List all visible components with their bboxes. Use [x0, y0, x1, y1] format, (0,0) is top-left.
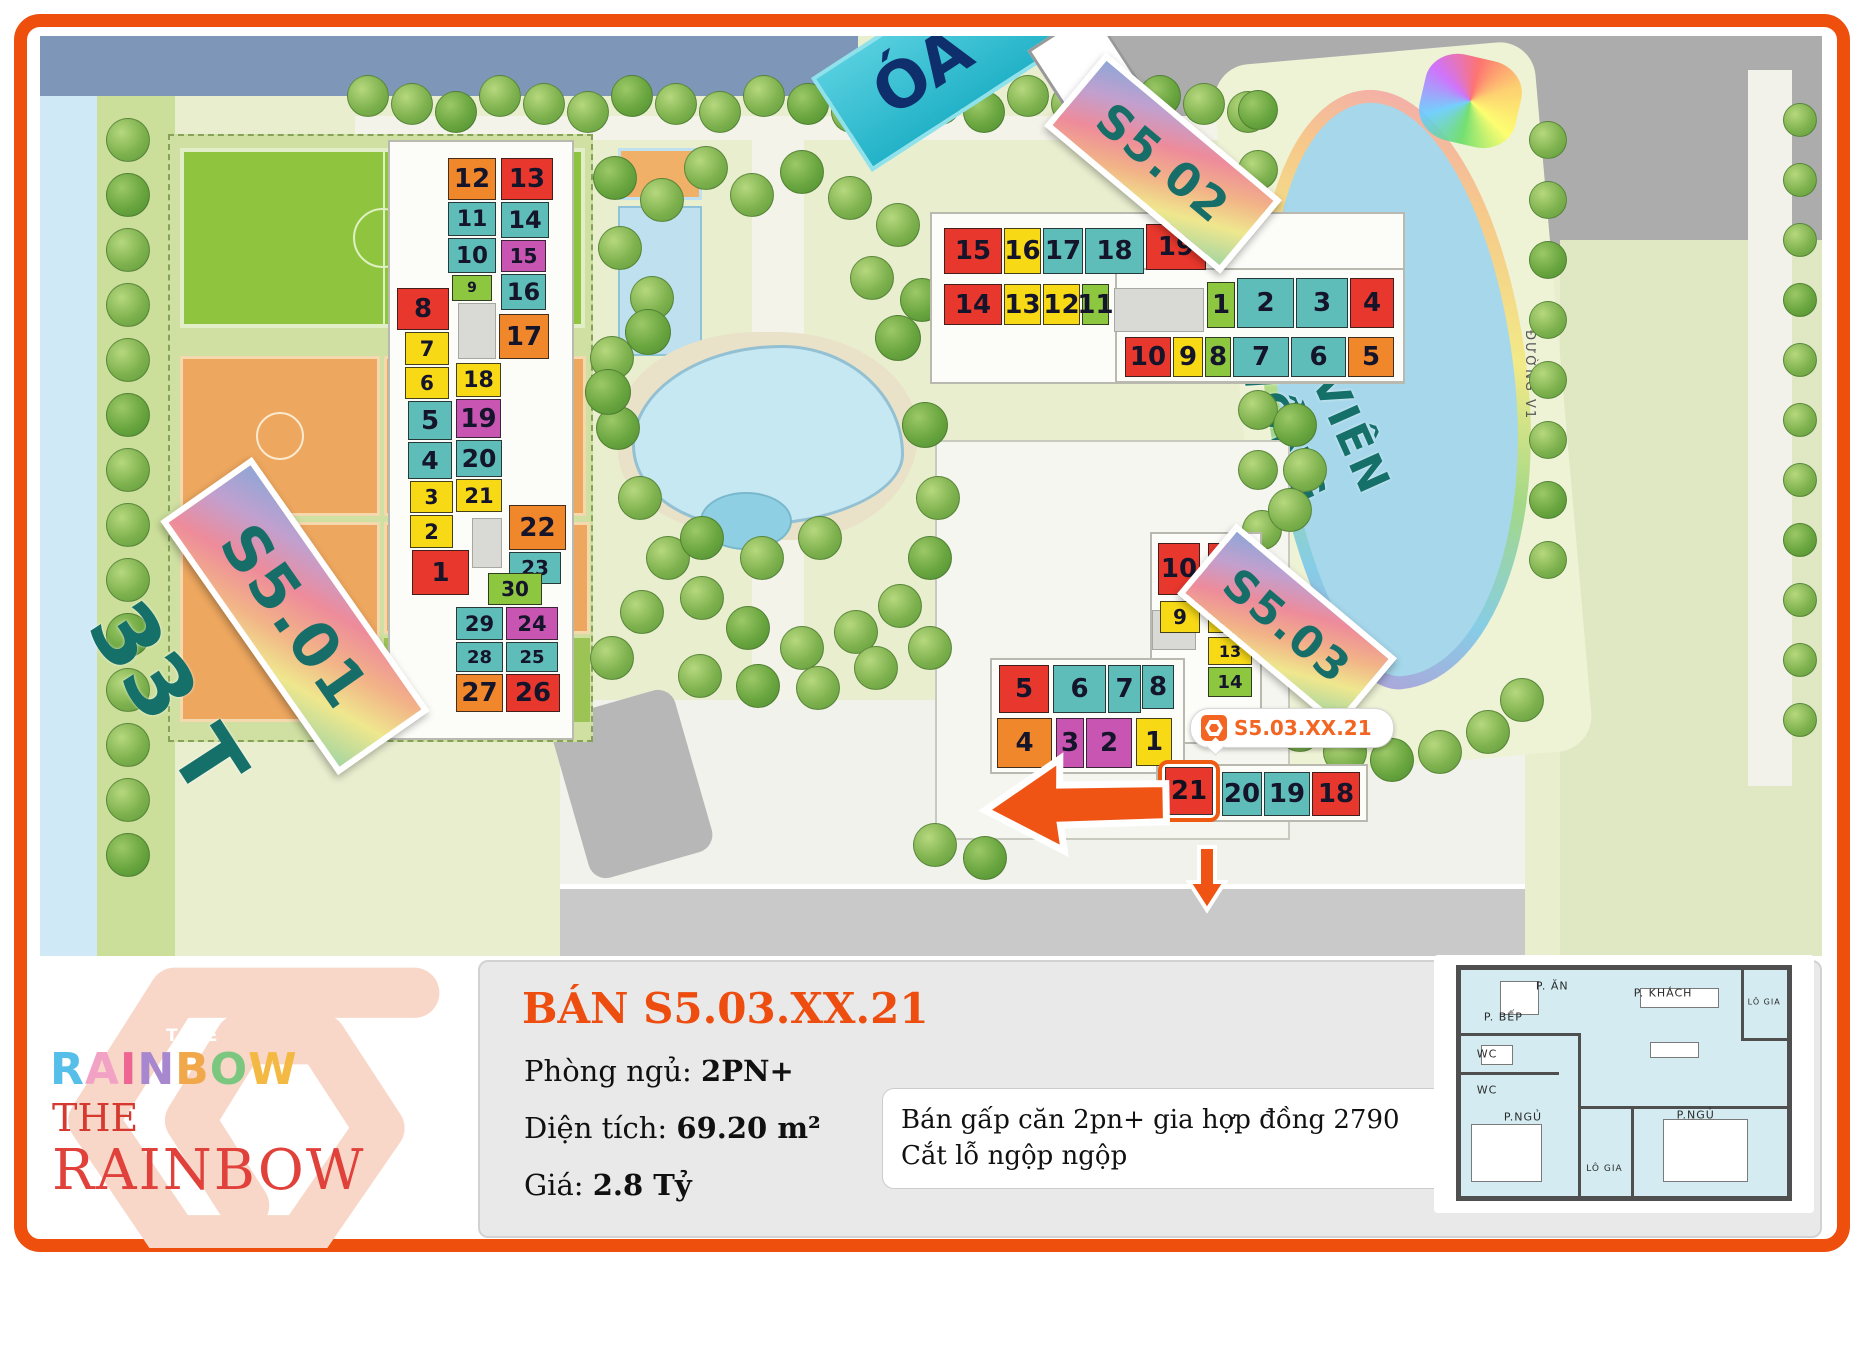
unit-s501-18[interactable]: 18	[456, 363, 501, 397]
tree-icon	[1783, 343, 1817, 377]
tree-icon	[1783, 463, 1817, 497]
unit-s503-14[interactable]: 14	[1208, 667, 1252, 697]
bottom-gray-road	[560, 884, 1525, 956]
unit-s501-16[interactable]: 16	[501, 274, 546, 310]
unit-s502-4[interactable]: 4	[1350, 278, 1394, 328]
unit-s502-8[interactable]: 8	[1205, 337, 1231, 377]
unit-s501-28[interactable]: 28	[456, 642, 503, 672]
unit-s501-5[interactable]: 5	[408, 401, 452, 440]
unit-s502-5[interactable]: 5	[1348, 337, 1394, 377]
tree-icon	[1238, 90, 1278, 130]
unit-s503-7[interactable]: 7	[1108, 665, 1141, 713]
tree-icon	[590, 636, 634, 680]
tree-icon	[796, 666, 840, 710]
top-blue-band	[40, 36, 858, 96]
tree-icon	[640, 178, 684, 222]
room-label-4: WC	[1477, 1047, 1498, 1060]
field-0: Phòng ngủ: 2PN+	[524, 1054, 821, 1088]
field-1: Diện tích: 69.20 m²	[524, 1111, 821, 1145]
tree-icon	[1283, 448, 1327, 492]
tree-icon	[680, 516, 724, 560]
unit-s501-10[interactable]: 10	[448, 238, 496, 273]
tree-icon	[850, 256, 894, 300]
logo-rainbow-colored: RAINBOW	[50, 1044, 298, 1095]
tree-icon	[1783, 283, 1817, 317]
unit-s501-26[interactable]: 26	[506, 674, 560, 712]
unit-s501-22[interactable]: 22	[509, 505, 566, 550]
unit-s503-8[interactable]: 8	[1142, 665, 1174, 709]
tree-icon	[1783, 403, 1817, 437]
tree-icon	[1783, 103, 1817, 137]
unit-s501-24[interactable]: 24	[506, 607, 558, 640]
unit-s501-21[interactable]: 21	[456, 479, 502, 512]
site-map: CÔNG VIÊN CẦU VỒNG ĐƯỜNG V1 121110987654…	[40, 36, 1822, 956]
logo-rainbow-red: RAINBOW	[52, 1138, 365, 1203]
listing-title: BÁN S5.03.XX.21	[522, 984, 929, 1033]
unit-s501-9[interactable]: 9	[452, 275, 492, 301]
unit-s501-2[interactable]: 2	[410, 515, 453, 548]
tree-icon	[1273, 403, 1317, 447]
room-label-0: P. ĂN	[1536, 979, 1569, 992]
tree-icon	[523, 83, 565, 125]
page: CÔNG VIÊN CẦU VỒNG ĐƯỜNG V1 121110987654…	[0, 0, 1864, 1366]
unit-s502-3[interactable]: 3	[1296, 278, 1348, 328]
room-label-1: P. KHÁCH	[1634, 986, 1693, 999]
tree-icon	[106, 393, 150, 437]
unit-s502-1[interactable]: 1	[1207, 282, 1235, 328]
logo-the-small: THE	[166, 1026, 224, 1046]
unit-s501-25[interactable]: 25	[506, 642, 558, 672]
unit-marker[interactable]: S5.03.XX.21	[1190, 708, 1394, 748]
tree-icon	[680, 576, 724, 620]
tree-icon	[611, 75, 653, 117]
marker-text: S5.03.XX.21	[1234, 716, 1372, 740]
tree-icon	[1783, 523, 1817, 557]
tree-icon	[585, 369, 631, 415]
room-label-2: LÔ GIA	[1748, 997, 1781, 1006]
unit-s501-12[interactable]: 12	[448, 158, 496, 200]
logo-letter-O: O	[210, 1044, 248, 1095]
unit-s502-17[interactable]: 17	[1043, 228, 1083, 274]
tree-icon	[730, 173, 774, 217]
floorplan-drawing: P. ĂNP. KHÁCHLÔ GIAP. BẾPWCWCP.NGỦLÔ GIA…	[1456, 965, 1792, 1201]
unit-s502-10[interactable]: 10	[1125, 337, 1171, 377]
tree-icon	[106, 503, 150, 547]
tree-icon	[479, 75, 521, 117]
tree-icon	[876, 203, 920, 247]
unit-s501-3[interactable]: 3	[410, 481, 453, 513]
unit-s502-18[interactable]: 18	[1085, 228, 1144, 274]
tree-icon	[618, 476, 662, 520]
floorplan: P. ĂNP. KHÁCHLÔ GIAP. BẾPWCWCP.NGỦLÔ GIA…	[1434, 955, 1814, 1213]
logo-letter-R: R	[50, 1044, 85, 1095]
unit-s502-7[interactable]: 7	[1233, 337, 1289, 377]
tree-icon	[1529, 361, 1567, 399]
tree-icon	[878, 584, 922, 628]
unit-s502-13[interactable]: 13	[1004, 284, 1041, 325]
tree-icon	[740, 536, 784, 580]
tree-icon	[908, 626, 952, 670]
field-2: Giá: 2.8 Tỷ	[524, 1168, 821, 1202]
tree-icon	[625, 309, 671, 355]
water-strip	[40, 96, 97, 956]
logo-letter-W: W	[248, 1044, 298, 1095]
left-arrow	[975, 750, 1175, 858]
tree-icon	[1529, 421, 1567, 459]
unit-s503-5[interactable]: 5	[999, 665, 1049, 713]
tree-icon	[598, 226, 642, 270]
unit-s502-12[interactable]: 12	[1043, 284, 1080, 325]
unit-s503-20[interactable]: 20	[1222, 772, 1262, 816]
tree-icon	[435, 91, 477, 133]
tree-icon	[1783, 583, 1817, 617]
tree-icon	[875, 315, 921, 361]
tree-icon	[1783, 163, 1817, 197]
tree-icon	[106, 118, 150, 162]
tree-icon	[1268, 488, 1312, 532]
unit-s503-18[interactable]: 18	[1312, 772, 1360, 816]
unit-s502-9[interactable]: 9	[1173, 337, 1203, 377]
tree-icon	[1500, 678, 1544, 722]
tree-icon	[854, 646, 898, 690]
down-arrow	[1186, 844, 1228, 914]
unit-s501-8[interactable]: 8	[397, 288, 449, 330]
tree-icon	[106, 283, 150, 327]
unit-s501-1[interactable]: 1	[412, 550, 469, 595]
tree-icon	[684, 146, 728, 190]
tree-icon	[347, 75, 389, 117]
unit-s501-4[interactable]: 4	[408, 442, 452, 479]
logo-the-red: THE	[52, 1096, 138, 1140]
tree-icon	[620, 590, 664, 634]
tree-icon	[902, 402, 948, 448]
unit-s503-6[interactable]: 6	[1053, 665, 1106, 713]
unit-s502-14[interactable]: 14	[944, 284, 1002, 325]
listing-card: BÁN S5.03.XX.21 Phòng ngủ: 2PN+Diện tích…	[478, 960, 1822, 1238]
unit-s501-20[interactable]: 20	[456, 440, 502, 477]
tree-icon	[593, 156, 637, 200]
tree-icon	[106, 173, 150, 217]
tree-icon	[736, 664, 780, 708]
listing-fields: Phòng ngủ: 2PN+Diện tích: 69.20 m²Giá: 2…	[524, 1054, 821, 1225]
unit-s502-15[interactable]: 15	[944, 228, 1002, 274]
room-label-8: P.NGỦ	[1677, 1108, 1715, 1121]
tree-icon	[1466, 710, 1510, 754]
tree-icon	[1183, 83, 1225, 125]
tree-icon	[828, 176, 872, 220]
tree-icon	[655, 83, 697, 125]
tree-icon	[106, 448, 150, 492]
tree-icon	[1783, 223, 1817, 257]
unit-s501-14[interactable]: 14	[501, 202, 549, 238]
tree-icon	[913, 823, 957, 867]
tree-icon	[1238, 450, 1278, 490]
logo-letter-A: A	[85, 1044, 120, 1095]
room-label-5: WC	[1477, 1083, 1498, 1096]
tree-icon	[1529, 541, 1567, 579]
tree-icon	[1007, 75, 1049, 117]
tree-icon	[1238, 390, 1278, 430]
listing-note: Bán gấp căn 2pn+ gia hợp đồng 2790 Cắt l…	[882, 1088, 1454, 1189]
room-label-6: P.NGỦ	[1504, 1110, 1542, 1123]
tree-icon	[106, 338, 150, 382]
unit-s501-27[interactable]: 27	[456, 674, 503, 712]
logo-letter-I: I	[120, 1044, 137, 1095]
tree-icon	[798, 516, 842, 560]
tree-icon	[1529, 481, 1567, 519]
unit-s502-2[interactable]: 2	[1237, 278, 1294, 328]
unit-s501-11[interactable]: 11	[448, 202, 496, 236]
room-label-7: LÔ GIA	[1586, 1164, 1622, 1174]
tree-icon	[1529, 181, 1567, 219]
tree-icon	[106, 228, 150, 272]
tree-icon	[780, 150, 824, 194]
tree-icon	[780, 626, 824, 670]
tree-icon	[106, 833, 150, 877]
rainbow-logo-block: THE RAINBOW THE RAINBOW	[48, 958, 458, 1248]
core-s501-a	[458, 303, 496, 359]
unit-s501-17[interactable]: 17	[499, 314, 549, 359]
core-s501-b	[472, 518, 502, 568]
unit-s501-19[interactable]: 19	[456, 399, 501, 438]
unit-s503-19[interactable]: 19	[1264, 772, 1310, 816]
tree-icon	[106, 778, 150, 822]
tree-icon	[908, 536, 952, 580]
unit-s501-13[interactable]: 13	[501, 158, 553, 200]
logo-letter-N: N	[137, 1044, 175, 1095]
unit-s502-11[interactable]: 11	[1082, 284, 1109, 325]
unit-s502-16[interactable]: 16	[1004, 228, 1041, 274]
tree-icon	[1783, 643, 1817, 677]
unit-s501-7[interactable]: 7	[405, 332, 449, 365]
tree-icon	[726, 606, 770, 650]
unit-s502-6[interactable]: 6	[1291, 337, 1346, 377]
tree-icon	[678, 654, 722, 698]
tree-icon	[1418, 730, 1462, 774]
tree-icon	[1529, 121, 1567, 159]
unit-s501-29[interactable]: 29	[456, 607, 503, 640]
tree-icon	[1783, 703, 1817, 737]
tree-icon	[567, 91, 609, 133]
core-s502	[1114, 288, 1204, 332]
tree-icon	[1529, 301, 1567, 339]
unit-s501-30[interactable]: 30	[488, 573, 542, 605]
unit-s501-6[interactable]: 6	[405, 367, 449, 399]
tree-icon	[391, 83, 433, 125]
unit-s501-15[interactable]: 15	[501, 240, 546, 272]
tree-icon	[916, 476, 960, 520]
tree-icon	[1529, 241, 1567, 279]
room-label-3: P. BẾP	[1484, 1011, 1523, 1024]
tree-icon	[743, 75, 785, 117]
tree-icon	[699, 91, 741, 133]
logo-letter-B: B	[175, 1044, 210, 1095]
